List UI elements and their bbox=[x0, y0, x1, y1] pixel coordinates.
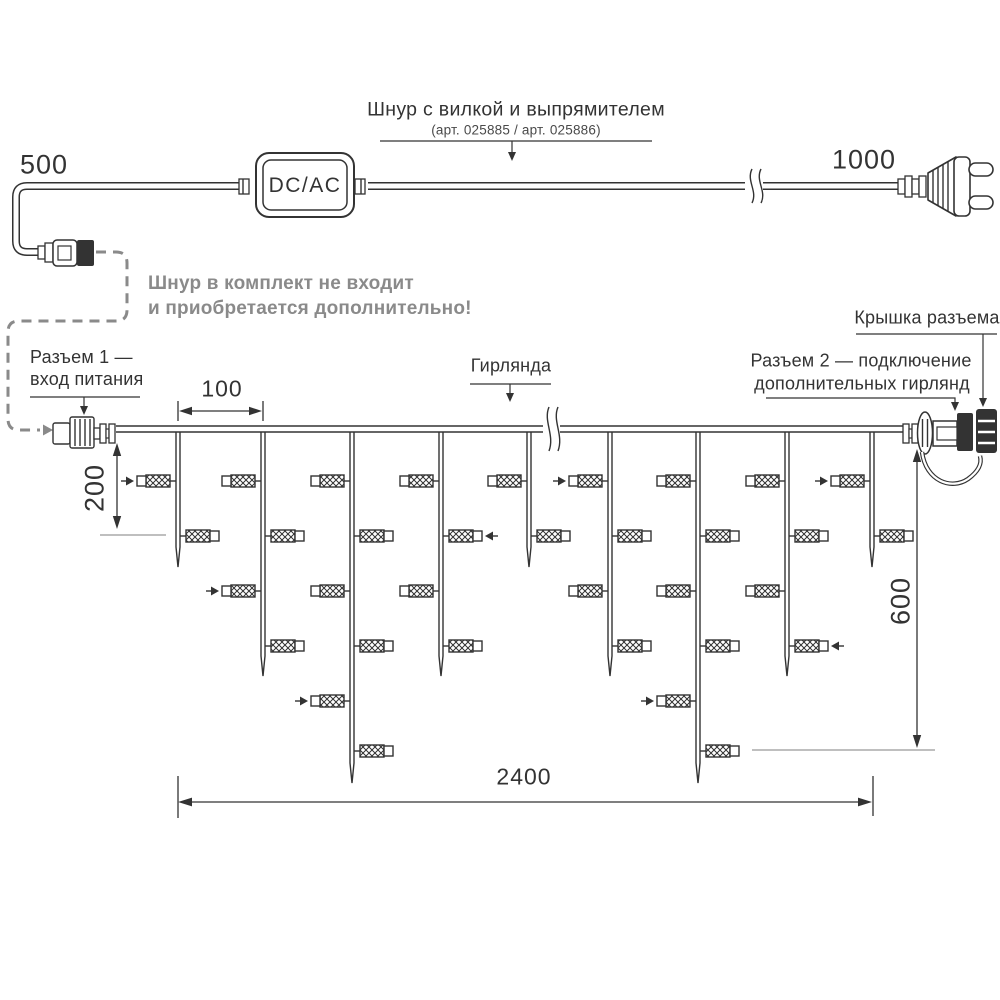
dim-500-label: 500 bbox=[20, 150, 68, 181]
lamp-icon bbox=[320, 475, 344, 487]
lamp-icon bbox=[706, 640, 730, 652]
lamp-icon bbox=[755, 475, 779, 487]
lamp-icon bbox=[618, 640, 642, 652]
lamp-icon bbox=[231, 585, 255, 597]
lamp-icon bbox=[320, 695, 344, 707]
garland-drop bbox=[553, 432, 651, 676]
lamp-icon bbox=[146, 475, 170, 487]
mains-plug bbox=[898, 157, 993, 216]
garland-drop bbox=[400, 432, 498, 676]
garland-main-wire bbox=[116, 407, 905, 451]
connector1-label-line1: Разъем 1 — bbox=[30, 347, 133, 368]
dcac-label: DC/AC bbox=[269, 174, 342, 198]
diagram-page: Шнур с вилкой и выпрямителем (арт. 02588… bbox=[0, 0, 1000, 1000]
power-cord-left bbox=[16, 186, 240, 252]
dim-100-label: 100 bbox=[201, 376, 242, 403]
lamp-icon bbox=[537, 530, 561, 542]
garland-drop bbox=[641, 432, 739, 783]
lamp-icon bbox=[618, 530, 642, 542]
lamp-icon bbox=[231, 475, 255, 487]
lamp-icon bbox=[409, 585, 433, 597]
lamp-arrow-icon bbox=[831, 642, 839, 651]
dim-1000-label: 1000 bbox=[832, 145, 896, 176]
lamp-icon bbox=[578, 585, 602, 597]
lamp-icon bbox=[795, 530, 819, 542]
dimension-100 bbox=[178, 401, 263, 421]
lamp-icon bbox=[449, 640, 473, 652]
garland-input-connector bbox=[53, 417, 115, 448]
connector-cap-label: Крышка разъема bbox=[854, 308, 999, 329]
lamp-icon bbox=[360, 530, 384, 542]
cord-callout-title: Шнур с вилкой и выпрямителем bbox=[367, 99, 665, 122]
power-cord-right bbox=[368, 169, 899, 203]
connector1-label-line2: вход питания bbox=[30, 369, 143, 390]
lamp-icon bbox=[666, 585, 690, 597]
lamp-icon bbox=[666, 695, 690, 707]
garland-drop bbox=[488, 432, 570, 567]
garland-drop bbox=[746, 432, 844, 676]
connector2-label-line1: Разъем 2 — подключение bbox=[750, 351, 971, 372]
lamp-icon bbox=[360, 640, 384, 652]
lamp-arrow-icon bbox=[485, 532, 493, 541]
power-input-connector bbox=[38, 240, 94, 266]
lamp-icon bbox=[795, 640, 819, 652]
lamp-icon bbox=[755, 585, 779, 597]
lamp-icon bbox=[271, 640, 295, 652]
garland-drops bbox=[121, 432, 913, 783]
lamp-arrow-icon bbox=[558, 477, 566, 486]
lamp-icon bbox=[360, 745, 384, 757]
lamp-icon bbox=[271, 530, 295, 542]
lamp-icon bbox=[706, 745, 730, 757]
lamp-icon bbox=[409, 475, 433, 487]
lamp-icon bbox=[497, 475, 521, 487]
note-line1: Шнур в комплект не входит bbox=[148, 273, 414, 295]
garland-drop bbox=[815, 432, 913, 567]
garland-drop bbox=[121, 432, 219, 567]
lamp-icon bbox=[666, 475, 690, 487]
lamp-icon bbox=[880, 530, 904, 542]
lamp-arrow-icon bbox=[300, 697, 308, 706]
lamp-icon bbox=[186, 530, 210, 542]
dim-2400-label: 2400 bbox=[496, 764, 551, 791]
lamp-icon bbox=[578, 475, 602, 487]
lamp-icon bbox=[706, 530, 730, 542]
lamp-icon bbox=[320, 585, 344, 597]
connector2-label-line2: дополнительных гирлянд bbox=[754, 374, 970, 395]
connector-cap bbox=[976, 409, 997, 453]
lamp-arrow-icon bbox=[646, 697, 654, 706]
lamp-arrow-icon bbox=[211, 587, 219, 596]
garland-drop bbox=[206, 432, 304, 676]
note-line2: и приобретается дополнительно! bbox=[148, 298, 472, 320]
lamp-arrow-icon bbox=[126, 477, 134, 486]
lamp-arrow-icon bbox=[820, 477, 828, 486]
dim-600-label: 600 bbox=[886, 577, 917, 625]
garland-drop bbox=[295, 432, 393, 783]
lamp-icon bbox=[449, 530, 473, 542]
lamp-icon bbox=[840, 475, 864, 487]
garland-label: Гирлянда bbox=[471, 356, 552, 377]
cord-callout-articles: (арт. 025885 / арт. 025886) bbox=[431, 123, 601, 138]
dashed-arrow-icon bbox=[43, 425, 53, 436]
dim-200-label: 200 bbox=[80, 464, 111, 512]
not-included-dashed-path bbox=[8, 252, 127, 436]
